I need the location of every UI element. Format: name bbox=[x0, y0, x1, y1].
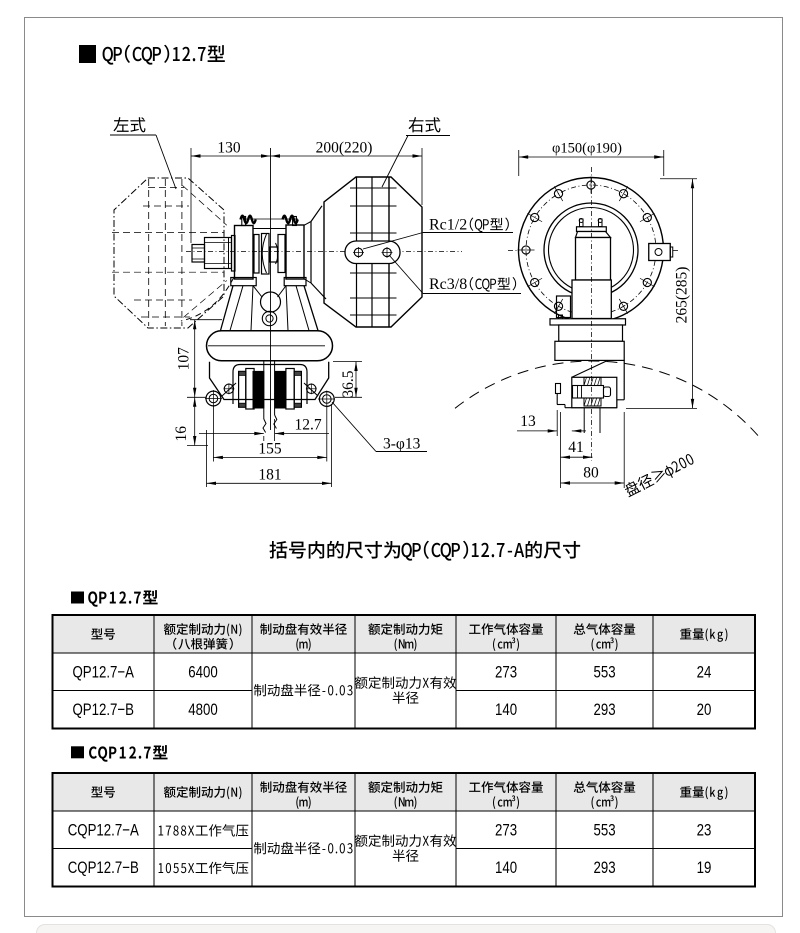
svg-text:293: 293 bbox=[593, 859, 615, 878]
svg-text:293: 293 bbox=[593, 701, 615, 720]
svg-text:41: 41 bbox=[568, 439, 584, 456]
svg-text:273: 273 bbox=[495, 663, 517, 682]
svg-text:265(285): 265(285) bbox=[674, 267, 691, 324]
svg-text:16: 16 bbox=[173, 426, 190, 442]
svg-text:273: 273 bbox=[495, 821, 517, 840]
svg-text:107: 107 bbox=[176, 347, 193, 371]
svg-text:QP12.7−B: QP12.7−B bbox=[72, 701, 134, 720]
svg-text:80: 80 bbox=[583, 465, 599, 482]
svg-text:553: 553 bbox=[593, 821, 615, 840]
svg-text:140: 140 bbox=[495, 701, 517, 720]
svg-text:Rc3/8: Rc3/8 bbox=[429, 276, 467, 293]
svg-text:24: 24 bbox=[697, 663, 712, 682]
svg-text:36.5: 36.5 bbox=[340, 370, 357, 397]
svg-text:CQP12.7−B: CQP12.7−B bbox=[68, 859, 139, 878]
svg-text:553: 553 bbox=[593, 663, 615, 682]
svg-text:CQP12.7−A: CQP12.7−A bbox=[68, 821, 140, 840]
svg-text:130: 130 bbox=[217, 140, 241, 157]
svg-text:4800: 4800 bbox=[188, 701, 217, 720]
svg-text:20: 20 bbox=[697, 701, 712, 720]
svg-text:155: 155 bbox=[258, 441, 282, 458]
svg-text:6400: 6400 bbox=[188, 663, 217, 682]
svg-text:φ150(φ190): φ150(φ190) bbox=[552, 141, 622, 157]
svg-text:QP12.7−A: QP12.7−A bbox=[72, 663, 134, 682]
svg-text:Rc1/2: Rc1/2 bbox=[429, 217, 467, 234]
svg-text:12.7: 12.7 bbox=[294, 417, 321, 434]
svg-text:181: 181 bbox=[258, 467, 281, 484]
svg-text:19: 19 bbox=[697, 859, 712, 878]
svg-text:200(220): 200(220) bbox=[316, 140, 373, 157]
svg-text:13: 13 bbox=[520, 413, 536, 430]
svg-text:23: 23 bbox=[697, 821, 712, 840]
svg-text:3-φ13: 3-φ13 bbox=[383, 436, 421, 453]
svg-text:140: 140 bbox=[495, 859, 517, 878]
